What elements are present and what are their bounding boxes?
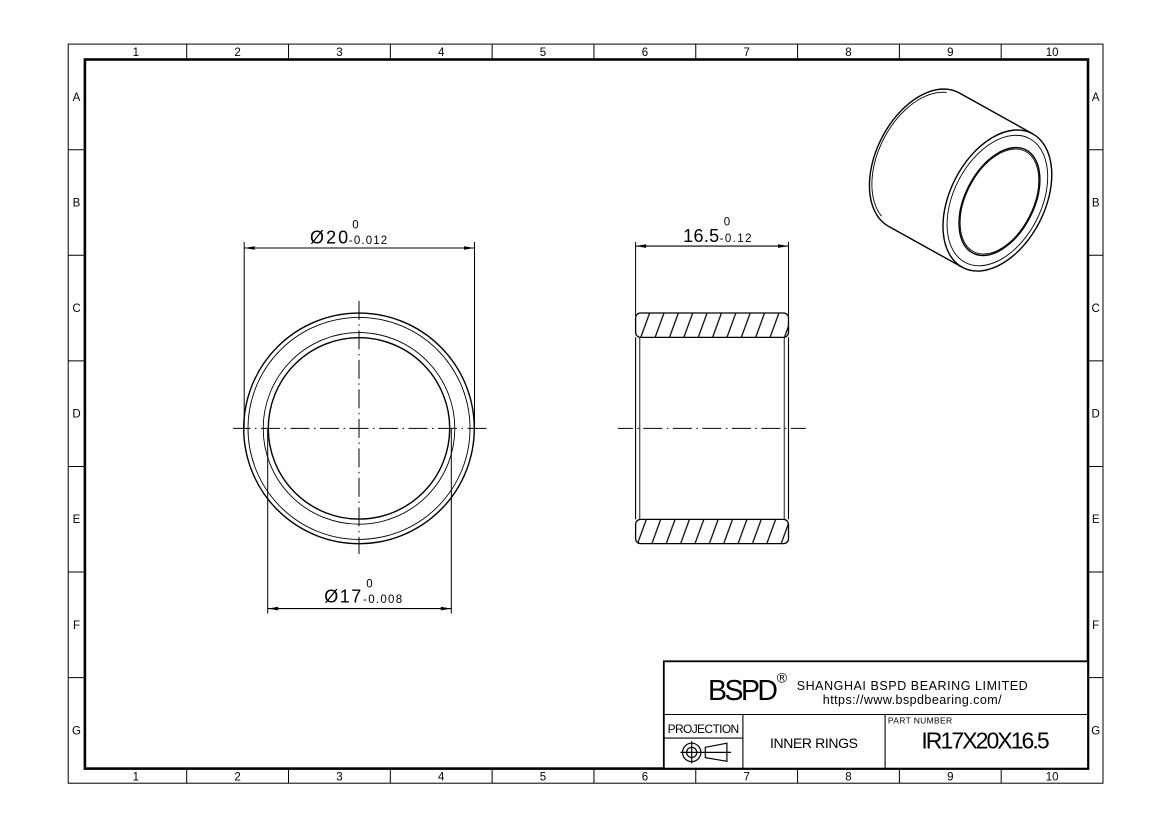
svg-text:Ø20: Ø20: [310, 228, 348, 248]
svg-text:C: C: [1092, 303, 1100, 315]
svg-text:SHANGHAI BSPD BEARING LIMITED: SHANGHAI BSPD BEARING LIMITED: [797, 679, 1028, 693]
svg-text:C: C: [72, 303, 80, 315]
svg-text:9: 9: [947, 772, 953, 784]
svg-text:INNER RINGS: INNER RINGS: [770, 735, 858, 751]
svg-text:0: 0: [366, 579, 372, 591]
svg-text:0: 0: [352, 219, 358, 231]
svg-text:PROJECTION: PROJECTION: [668, 722, 740, 736]
svg-text:4: 4: [438, 47, 445, 59]
svg-text:5: 5: [540, 772, 546, 784]
svg-text:7: 7: [743, 772, 749, 784]
svg-text:3: 3: [336, 47, 342, 59]
svg-text:6: 6: [642, 47, 648, 59]
svg-text:0: 0: [724, 216, 730, 228]
svg-text:16.5: 16.5: [683, 226, 719, 246]
svg-text:F: F: [73, 620, 80, 632]
svg-text:D: D: [72, 409, 80, 421]
svg-text:®: ®: [777, 670, 788, 686]
svg-text:D: D: [1092, 409, 1100, 421]
svg-text:8: 8: [845, 47, 851, 59]
svg-text:A: A: [73, 92, 81, 104]
svg-text:-0.008: -0.008: [363, 594, 402, 606]
svg-text:E: E: [73, 514, 81, 526]
svg-text:1: 1: [133, 772, 139, 784]
svg-text:2: 2: [234, 47, 240, 59]
svg-text:Ø17: Ø17: [324, 587, 361, 607]
svg-text:6: 6: [642, 772, 648, 784]
svg-text:4: 4: [438, 772, 445, 784]
svg-text:-0.012: -0.012: [349, 235, 387, 247]
svg-text:5: 5: [540, 47, 546, 59]
svg-text:9: 9: [947, 47, 953, 59]
svg-text:8: 8: [845, 772, 851, 784]
svg-text:IR17X20X16.5: IR17X20X16.5: [921, 728, 1049, 754]
svg-text:3: 3: [336, 772, 342, 784]
svg-text:BSPD: BSPD: [708, 675, 778, 707]
svg-text:PART NUMBER: PART NUMBER: [888, 715, 952, 725]
svg-text:B: B: [1092, 198, 1100, 210]
svg-text:1: 1: [133, 47, 139, 59]
svg-text:G: G: [72, 725, 81, 737]
svg-text:G: G: [1091, 725, 1100, 737]
svg-text:7: 7: [743, 47, 749, 59]
svg-text:10: 10: [1046, 47, 1059, 59]
svg-text:10: 10: [1046, 772, 1059, 784]
svg-text:2: 2: [234, 772, 240, 784]
svg-text:E: E: [1092, 514, 1100, 526]
svg-text:B: B: [73, 198, 81, 210]
svg-text:https://www.bspdbearing.com/: https://www.bspdbearing.com/: [823, 693, 1002, 707]
svg-text:F: F: [1092, 620, 1099, 632]
svg-text:A: A: [1092, 92, 1100, 104]
svg-text:-0.12: -0.12: [720, 233, 752, 245]
